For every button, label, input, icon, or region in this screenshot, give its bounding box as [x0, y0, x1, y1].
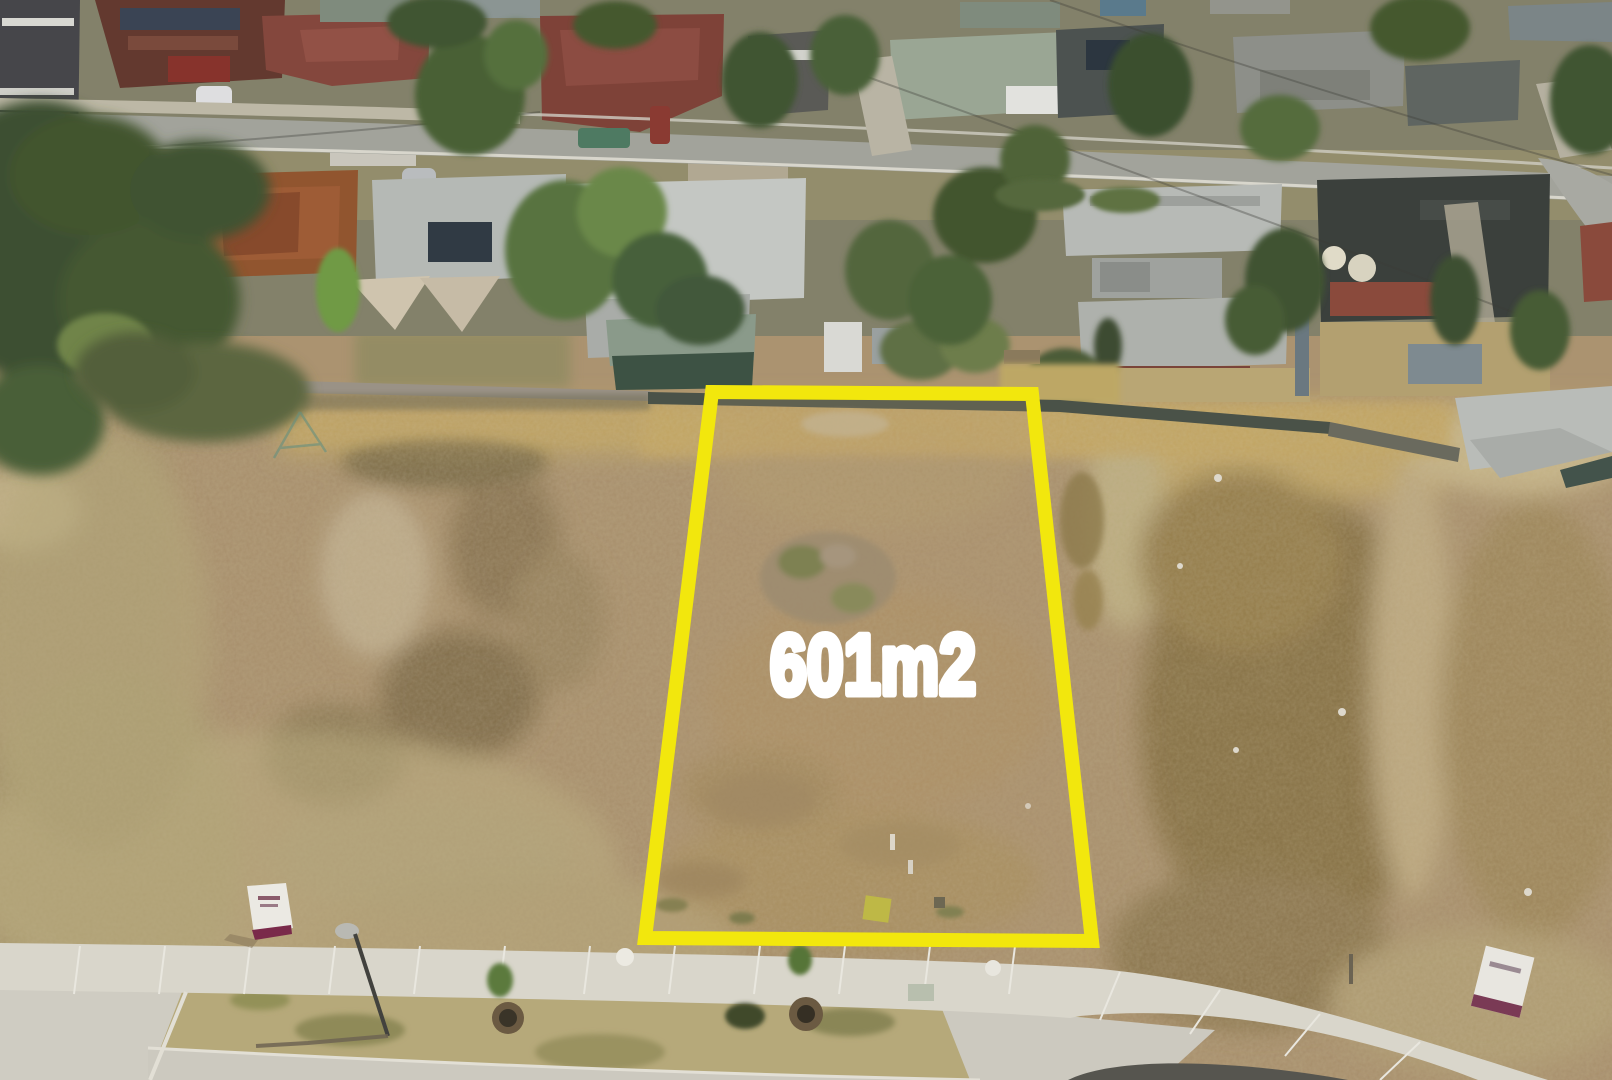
- svg-text:601m2: 601m2: [770, 618, 976, 713]
